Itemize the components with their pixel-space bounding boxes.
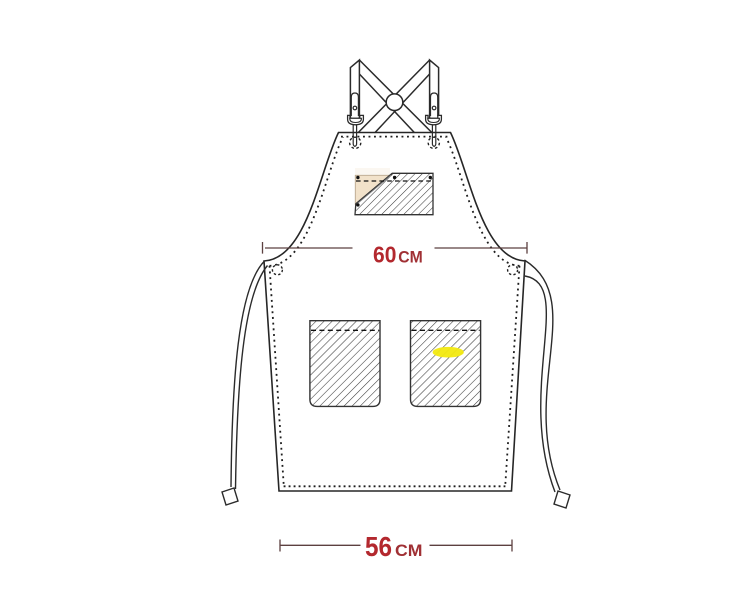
svg-text:56: 56: [365, 531, 392, 562]
svg-text:CM: CM: [395, 541, 423, 560]
svg-text:CM: CM: [398, 248, 423, 266]
svg-text:60: 60: [373, 242, 396, 268]
